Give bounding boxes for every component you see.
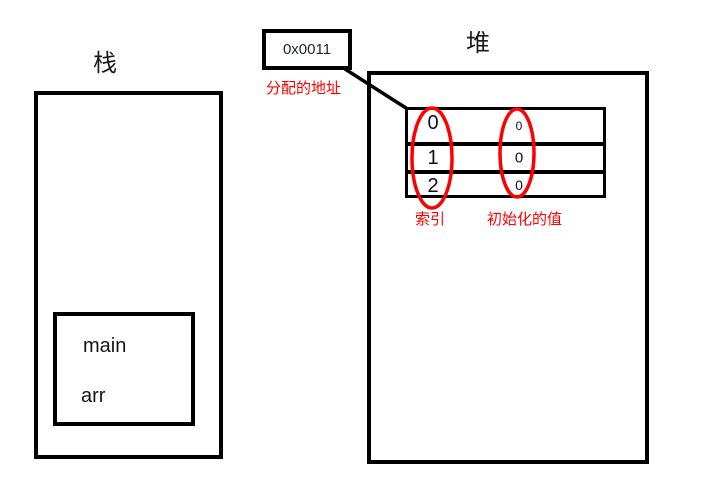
stack-frame-box: main arr — [53, 312, 195, 426]
index-cell: 2 — [418, 176, 448, 196]
allocated-address-caption: 分配的地址 — [266, 81, 341, 98]
array-row: 0 0 — [408, 110, 603, 142]
value-cell: 0 — [504, 120, 534, 132]
value-cell: 0 — [504, 178, 534, 192]
memory-diagram: 栈 main arr 0x0011 分配的地址 堆 0 0 1 0 2 0 索引… — [0, 0, 704, 487]
index-cell: 1 — [418, 148, 448, 168]
allocated-address-value: 0x0011 — [283, 41, 331, 58]
allocated-address-box: 0x0011 — [262, 29, 352, 70]
array-row: 2 0 — [408, 170, 603, 195]
index-cell: 0 — [418, 113, 448, 133]
index-column-caption: 索引 — [415, 212, 445, 229]
array-table: 0 0 1 0 2 0 — [405, 107, 606, 198]
heap-zone-label: 堆 — [466, 32, 490, 56]
stack-zone-label: 栈 — [93, 52, 117, 76]
array-row: 1 0 — [408, 142, 603, 170]
value-cell: 0 — [504, 151, 534, 166]
frame-function-name: main — [83, 336, 126, 356]
frame-variable-name: arr — [81, 386, 105, 406]
values-column-caption: 初始化的值 — [487, 212, 562, 229]
